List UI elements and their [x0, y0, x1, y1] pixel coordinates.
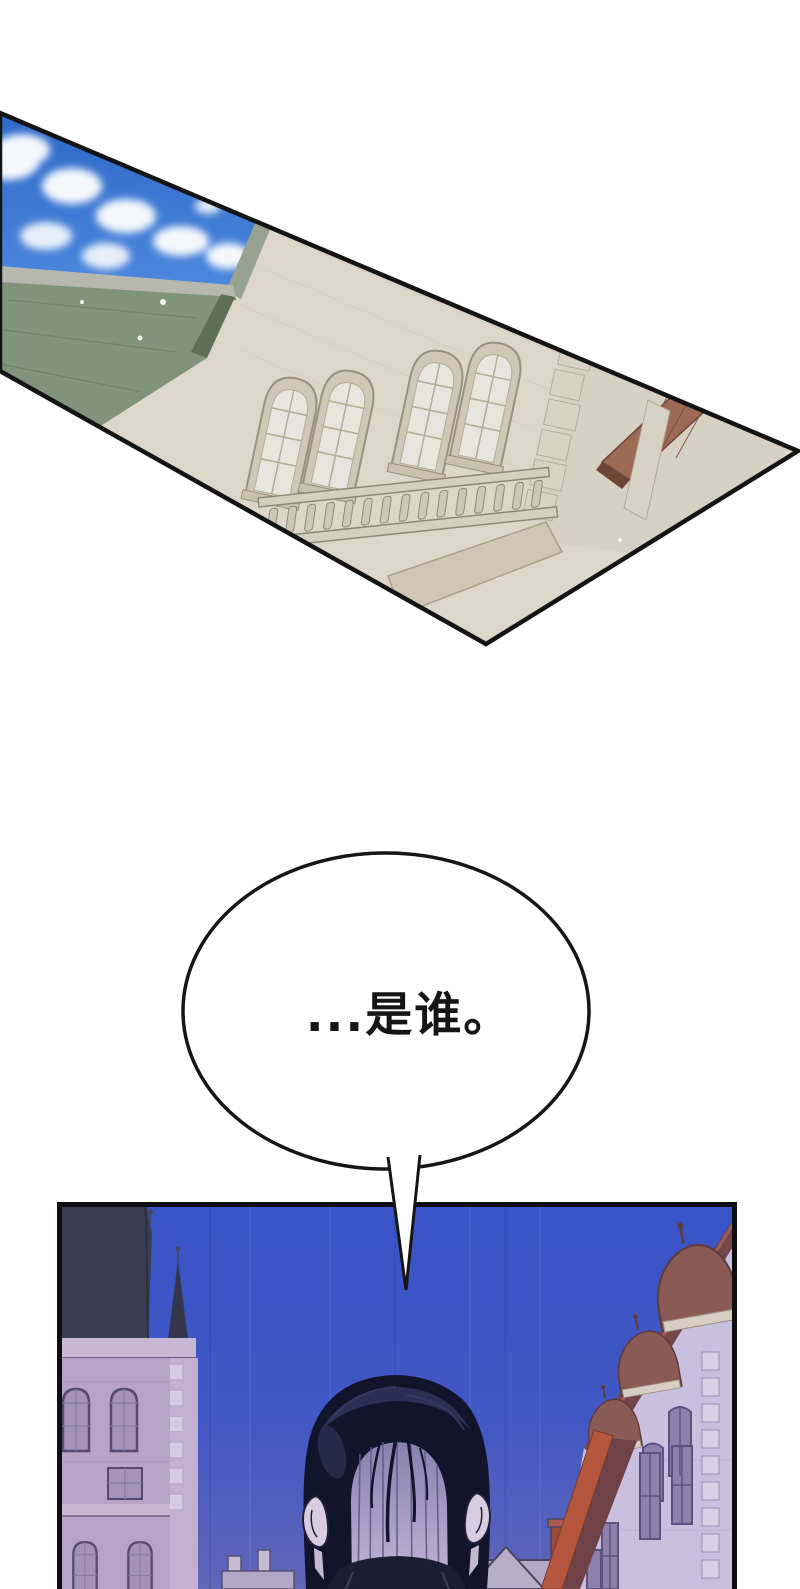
- left-window: [111, 1389, 137, 1451]
- left-roof: [62, 1207, 152, 1340]
- left-ledge: [62, 1504, 170, 1516]
- left-window: [128, 1542, 151, 1589]
- left-rect-window: [108, 1468, 142, 1499]
- right-quoins: [702, 1352, 719, 1578]
- castle-wall-corner-face: [534, 338, 798, 560]
- top-panel: [0, 100, 800, 660]
- left-cornice: [62, 1338, 196, 1358]
- comic-page-svg: ...是谁。: [0, 0, 800, 1589]
- bubble-text: ...是谁。: [306, 988, 513, 1043]
- comic-page: ...是谁。: [0, 0, 800, 1589]
- left-building: [62, 1207, 198, 1589]
- left-window: [73, 1542, 96, 1589]
- bottom-panel: [60, 1205, 742, 1589]
- character-head: [303, 1375, 490, 1589]
- left-window: [63, 1389, 89, 1451]
